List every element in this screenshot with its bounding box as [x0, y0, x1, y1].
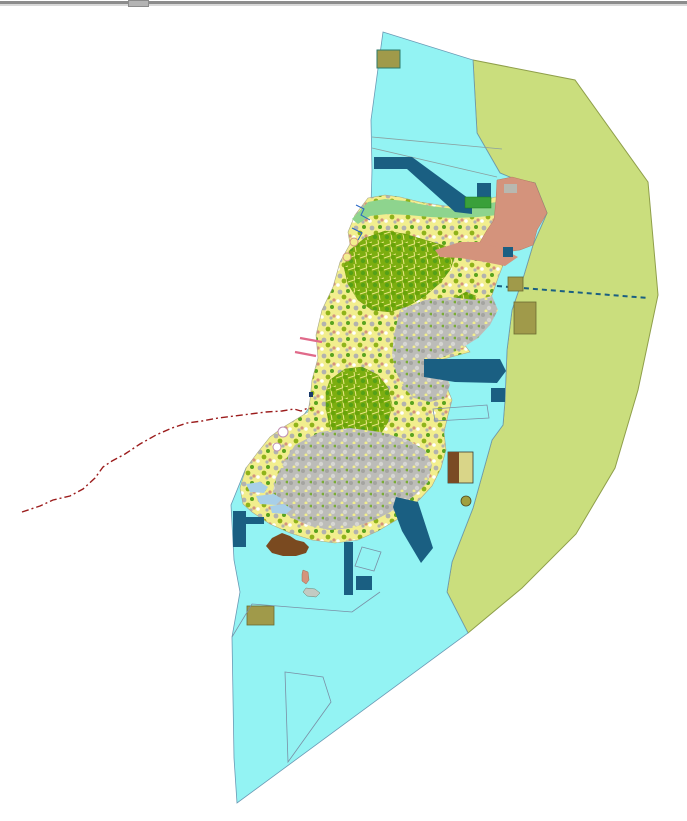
window-top-edge-highlight: [0, 4, 687, 6]
navy-strip-south: [344, 542, 353, 595]
map-features: [22, 32, 658, 803]
coast-mark-west: [309, 392, 313, 397]
khaki-islet-southeast: [461, 496, 471, 506]
map-window: [0, 0, 687, 821]
khaki-site-north: [377, 50, 400, 68]
navy-square-east-2: [491, 388, 505, 402]
coast-ring-1: [350, 238, 358, 246]
scrollbar-tab[interactable]: [128, 0, 149, 7]
coast-ring-2: [343, 253, 351, 261]
khaki-site-southwest: [247, 606, 274, 625]
navy-square-south: [356, 576, 372, 590]
groyne-pink-2: [295, 352, 316, 356]
green-site-ne: [465, 197, 491, 208]
map-canvas[interactable]: [0, 0, 687, 821]
coast-ring-3: [278, 427, 288, 437]
coast-ring-4: [273, 443, 281, 451]
map-svg: [0, 0, 687, 821]
khaki-site-east-large: [514, 302, 536, 334]
navy-square-ne-1: [477, 183, 491, 197]
khaki-site-east-small: [508, 277, 523, 291]
site-rect-two-tone-brown: [448, 452, 459, 483]
salmon-zone-gray-patch: [504, 184, 517, 193]
navy-square-east-coast: [503, 247, 513, 257]
